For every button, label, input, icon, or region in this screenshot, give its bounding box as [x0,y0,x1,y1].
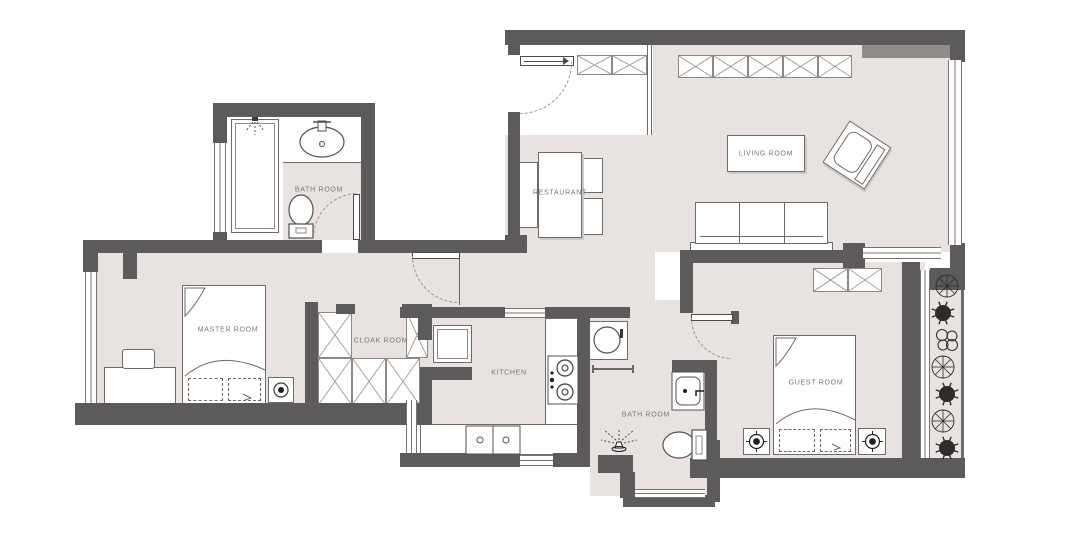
room-label-guest: GUEST ROOM [789,380,844,387]
plant-icon [933,380,961,408]
room-label-cloak: CLOAK ROOM [354,338,408,345]
room-label-restaurant: RESTAURANT [533,190,587,197]
wall [213,103,375,117]
room-label-bathroom-1: BATH ROOM [295,187,343,194]
plant-icon [933,326,961,354]
vanity-sink-icon [295,118,349,162]
corridor-door-frame [459,259,460,305]
dining-chair [583,158,603,193]
window [948,60,962,245]
wall [75,403,432,425]
wall [505,30,965,45]
lamp-target-icon [745,430,768,453]
dining-chair [583,198,603,235]
room-label-living: LIVING ROOM [739,151,793,158]
wardrobe-hatch [748,55,783,78]
floor-plan: BATH ROOM MASTER ROOM CLOAK ROOM KITCHEN… [0,0,1080,540]
window [520,455,553,466]
wardrobe-hatch [813,268,848,292]
entry-door-swing-arc [468,10,572,114]
bathroom-2-sink-icon [670,370,710,412]
window [406,400,417,453]
desk-chair [122,349,155,369]
wardrobe-hatch [318,358,352,405]
plant-icon [929,407,957,435]
floor-drain-shower-icon [596,422,642,458]
window [635,489,705,498]
window [863,247,941,259]
shower-head-icon [240,113,270,143]
towel-bar-end [592,365,594,373]
wall [508,112,520,235]
wall [420,367,472,380]
shoe-cabinet-hatch [577,55,612,75]
toilet-icon [284,194,318,242]
wall [83,240,98,272]
plant-icon [929,299,957,327]
towel-bar [592,368,634,370]
toilet-icon [660,426,712,464]
wardrobe-hatch [352,358,386,405]
window [214,143,226,232]
towel-bar-end [632,365,634,373]
wardrobe-hatch [713,55,748,78]
wall [400,307,505,318]
room-label-master: MASTER ROOM [198,327,259,334]
room-label-bathroom-2: BATH ROOM [622,412,670,419]
sofa [695,202,828,244]
wall [213,103,227,143]
window [505,308,545,318]
room-label-kitchen: KITCHEN [491,370,527,377]
wall [680,250,693,313]
shoe-cabinet-hatch [612,55,647,75]
washing-machine-drum-icon [591,323,626,358]
guest-bed [773,335,856,455]
wall [950,30,965,62]
wardrobe-hatch [318,312,352,358]
wall [305,302,318,405]
blanket-lines [774,336,857,456]
wall [843,243,865,268]
lamp-icon [270,379,292,401]
wardrobe-hatch [386,358,420,405]
wall-pillar [123,253,137,279]
wall [950,243,965,268]
ceiling-beam [862,45,954,58]
wardrobe-hatch [783,55,818,78]
wardrobe-hatch [848,268,882,292]
wardrobe-hatch [678,55,713,78]
wall [902,262,920,462]
wardrobe-hatch [818,55,852,78]
wall [361,103,375,253]
stove-icon [547,355,579,405]
plant-icon [933,434,961,462]
master-bed [182,285,266,405]
balcony-plants [926,270,965,472]
wall [680,250,845,263]
desk [104,367,176,404]
glass-divider [647,45,652,135]
wall [545,307,630,318]
plant-icon [929,353,957,381]
wall [690,458,965,478]
lamp-target-icon [861,430,884,453]
wall [508,45,520,55]
window [85,272,97,403]
wall [336,304,355,314]
blanket-lines [183,286,267,406]
wall [505,235,527,253]
kitchen-sink-icon [464,423,522,457]
wall [553,453,590,467]
wall [420,380,432,405]
fridge [433,325,472,363]
plant-icon [933,272,961,300]
